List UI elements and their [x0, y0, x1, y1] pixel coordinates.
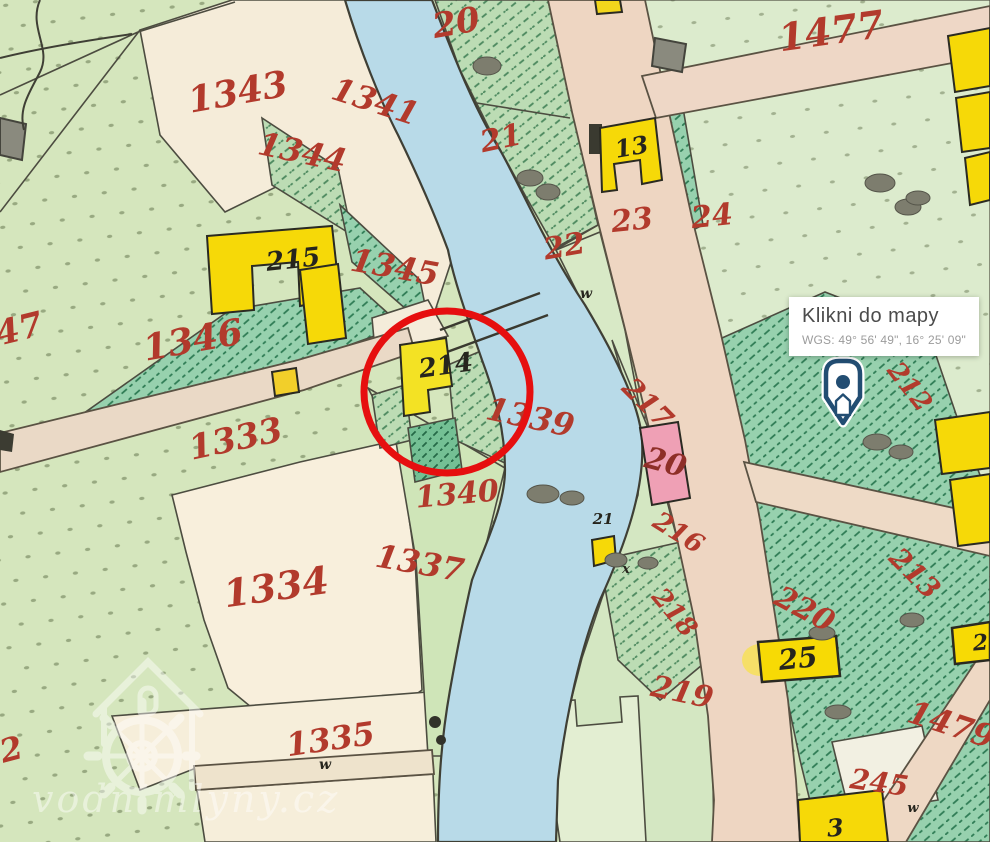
parcel-label-23: 23: [608, 201, 654, 240]
building-e-b: [950, 474, 990, 546]
map-canvas[interactable]: 2014771343134113442123242213454713461333…: [0, 0, 990, 842]
parcel-label-2: 2: [971, 629, 990, 656]
parcel-label-w: w: [580, 286, 593, 302]
parcel-label-215: 215: [264, 242, 322, 278]
watermark-text: vodnimlyny.cz: [32, 777, 340, 821]
parcel-label-24: 24: [688, 197, 734, 236]
building-gray-top: [652, 38, 686, 72]
parcel-label-22: 22: [540, 226, 588, 268]
map-popup: Klikni do mapy WGS: 49° 56' 49", 16° 25'…: [789, 297, 979, 356]
popup-title: Klikni do mapy: [802, 305, 966, 328]
parcel-label-25: 25: [776, 640, 819, 677]
parcel-label-20: 20: [428, 0, 483, 47]
building-top-tiny: [595, 0, 622, 14]
building-e-a: [935, 412, 990, 474]
parcel-label-1340: 1340: [414, 473, 500, 515]
parcel-label-w: w: [907, 801, 919, 816]
popup-coordinates: WGS: 49° 56' 49", 16° 25' 09": [802, 333, 966, 347]
parcel-label-w: w: [319, 757, 332, 773]
building-ne-b: [956, 92, 990, 152]
parcel-label-21: 21: [592, 510, 614, 528]
building-ne-c: [965, 152, 990, 205]
building-small-road: [272, 368, 299, 396]
parcel-label-3: 3: [826, 812, 845, 842]
parcel-label-x: x: [621, 562, 630, 577]
building-215-wing: [300, 264, 346, 344]
map-viewport: 2014771343134113442123242213454713461333…: [0, 0, 990, 842]
parcel-label-13: 13: [613, 129, 651, 163]
building-ne-a: [948, 28, 990, 92]
